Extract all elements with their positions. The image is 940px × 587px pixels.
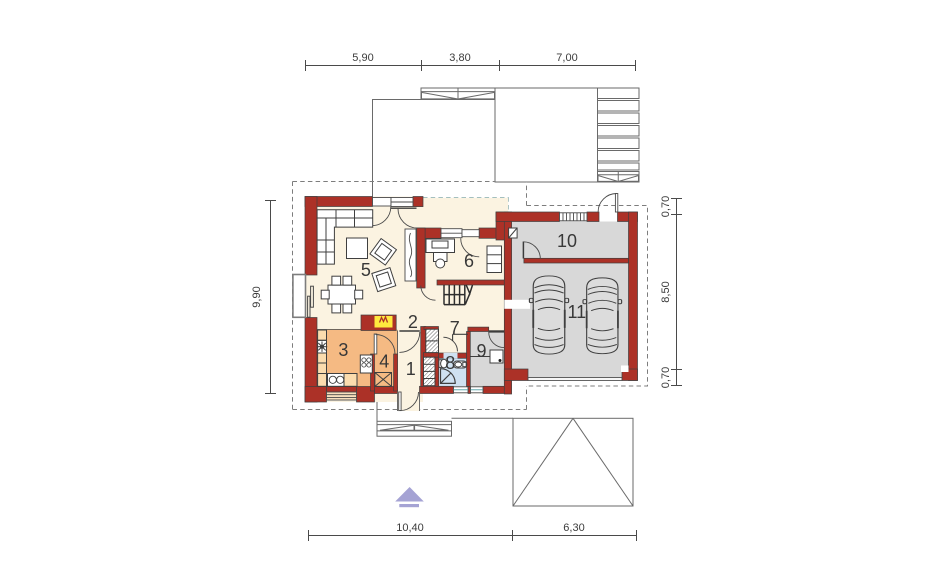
svg-text:7: 7: [450, 318, 460, 338]
svg-text:5: 5: [361, 260, 371, 280]
svg-text:8: 8: [445, 353, 455, 373]
svg-text:6,30: 6,30: [563, 522, 584, 534]
svg-text:1: 1: [406, 359, 416, 379]
svg-text:8,50: 8,50: [660, 281, 672, 302]
svg-text:0,70: 0,70: [660, 196, 672, 217]
svg-text:5,90: 5,90: [352, 52, 373, 64]
svg-text:11: 11: [567, 302, 586, 322]
svg-text:3: 3: [338, 340, 348, 360]
svg-text:2: 2: [408, 312, 418, 332]
svg-text:6: 6: [464, 251, 474, 271]
svg-text:10,40: 10,40: [396, 522, 424, 534]
svg-text:0,70: 0,70: [660, 367, 672, 388]
svg-text:3,80: 3,80: [449, 52, 470, 64]
svg-text:7,00: 7,00: [556, 52, 577, 64]
svg-text:4: 4: [379, 352, 389, 372]
svg-text:10: 10: [557, 231, 577, 251]
svg-text:9: 9: [476, 341, 486, 361]
svg-text:9,90: 9,90: [251, 286, 263, 307]
